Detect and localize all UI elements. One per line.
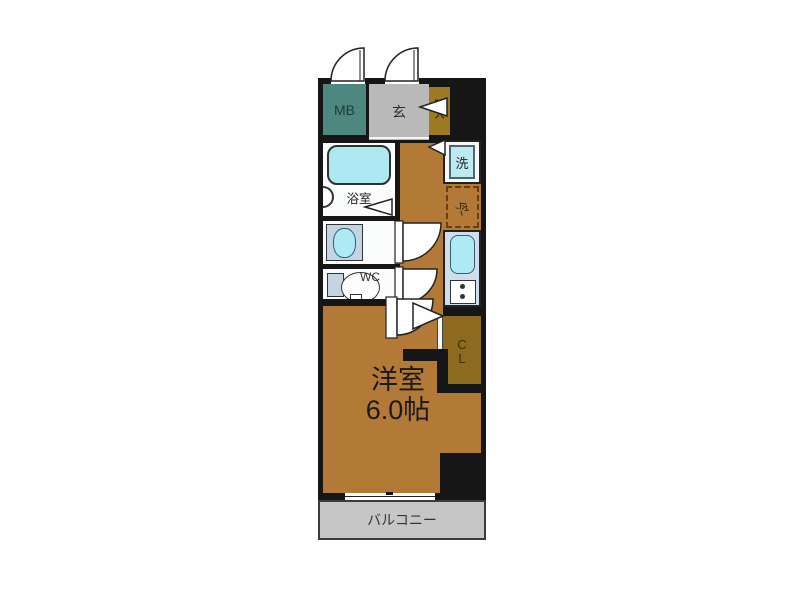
washer-direction-triangle [429,140,445,155]
washroom-door-leaf [395,221,403,263]
entry-door-swing-right [385,48,418,81]
floor-plan-canvas: MB 玄 靴 入 浴室 WC 洗 冷 [0,0,800,600]
washroom-door-swing [403,223,441,261]
main-room-door-leaf [386,297,397,338]
entry-door-swing-left [331,48,364,81]
entrance-direction-triangle [420,98,447,116]
wc-door-swing [403,269,437,303]
bathroom-door-triangle [365,199,392,215]
door-symbols-overlay [0,0,800,600]
